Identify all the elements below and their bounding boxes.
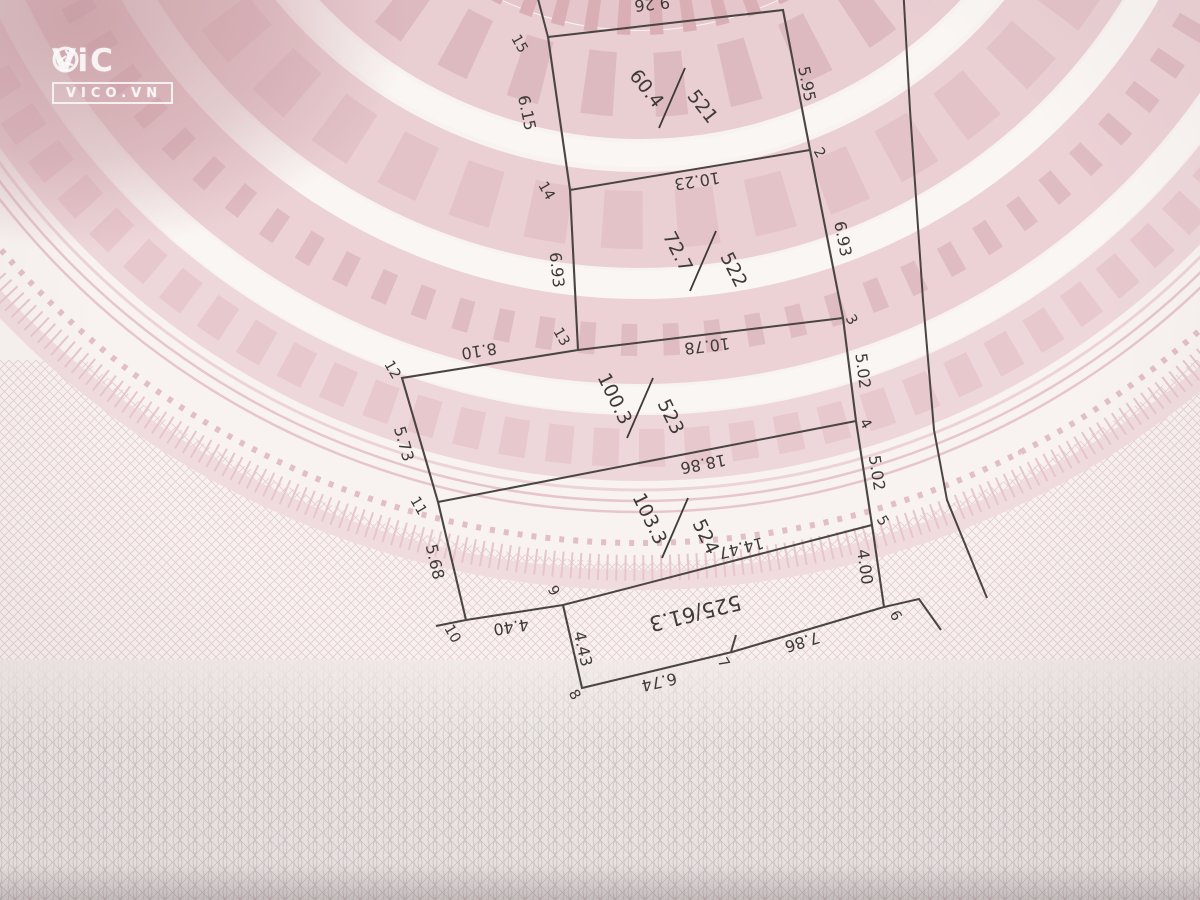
vertex-number-label: 14 <box>534 179 557 203</box>
parcel-number-522: 522 <box>715 249 751 291</box>
edge-length-label: 5.68 <box>422 542 449 581</box>
edge-length-label: 5.02 <box>851 352 874 390</box>
watermark: ViC VICO.VN <box>52 46 173 104</box>
parcel-number-521: 521 <box>683 86 723 128</box>
parcel-area-521: 60.4 <box>625 65 668 112</box>
edge-length-label: 5.95 <box>794 65 819 104</box>
edge-length-label: 8.10 <box>460 339 498 363</box>
parcel-area-522: 72.7 <box>658 228 697 276</box>
vertex-number-label: 5 <box>873 513 891 529</box>
edge-length-label: 6.93 <box>546 251 569 288</box>
edge-length-label: 5.02 <box>865 454 889 492</box>
photo-of-cadastral-parcel-diagram: 9.266.155.9510.236.936.9310.788.105.025.… <box>0 0 1200 900</box>
edge-length-label: 10.78 <box>683 334 731 358</box>
edge-length-label: 4.43 <box>570 629 597 668</box>
vertex-number-label: 6 <box>886 608 904 624</box>
edge-length-label: 4.40 <box>492 615 530 639</box>
vertex-number-label: 13 <box>549 325 572 349</box>
tick-vertex-7 <box>731 635 736 652</box>
vertex-number-label: 9 <box>544 583 562 599</box>
parcel-number-524: 524 <box>688 516 724 558</box>
road-boundary <box>903 0 987 598</box>
edge-length-label: 9.26 <box>633 0 670 15</box>
parcel-number-523: 523 <box>653 396 689 438</box>
boundary-extension-top <box>533 0 548 37</box>
edge-length-label: 5.73 <box>390 424 418 463</box>
vertex-number-label: 7 <box>714 655 732 671</box>
vertex-number-label: 4 <box>856 416 874 432</box>
parcel-diagram-layer: 9.266.155.9510.236.936.9310.788.105.025.… <box>0 0 1200 900</box>
vertex-number-label: 10 <box>440 622 463 646</box>
edge-length-label: 14.47 <box>717 533 766 563</box>
parcel-area-524: 103.3 <box>628 490 672 549</box>
vertex-number-label: 11 <box>406 494 429 518</box>
vertex-number-label: 15 <box>507 32 530 56</box>
edge-length-label: 6.15 <box>514 93 540 132</box>
parcel-area-523: 100.3 <box>593 370 637 429</box>
edge-length-label: 6.93 <box>830 220 855 259</box>
vertex-number-label: 8 <box>565 687 583 703</box>
edge-length-label: 4.00 <box>853 548 877 586</box>
parcel-label-525: 525/61.3 <box>647 590 744 636</box>
watermark-site: VICO.VN <box>52 82 173 104</box>
vertex-number-label: 12 <box>380 358 403 382</box>
watermark-brand: ViC <box>52 46 173 77</box>
